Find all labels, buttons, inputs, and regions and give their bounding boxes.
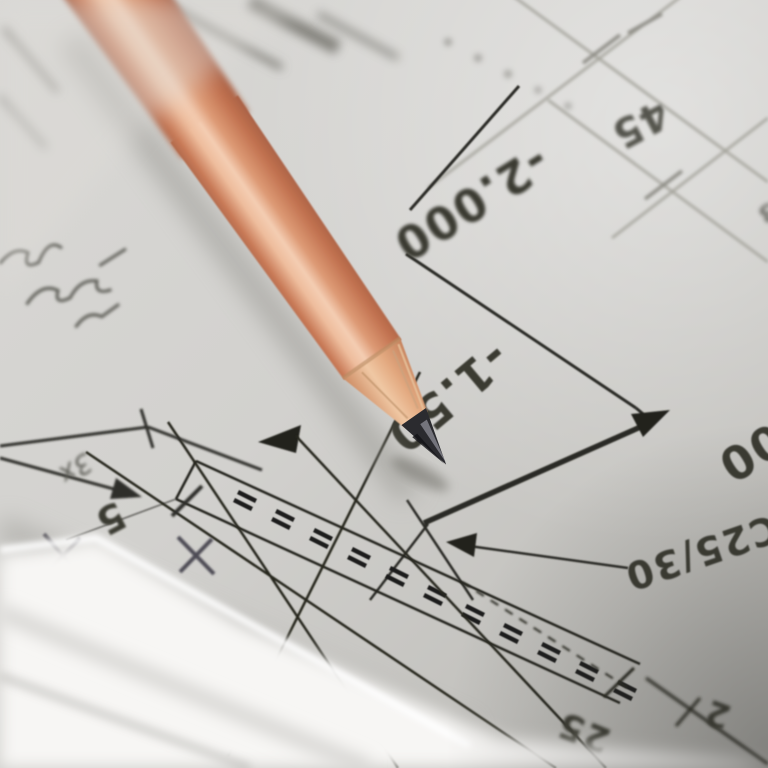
photo-of-pencil-on-blueprint: 45 3: [0, 0, 768, 768]
photo-canvas: 45 3: [0, 0, 768, 768]
vignette: [0, 0, 768, 768]
